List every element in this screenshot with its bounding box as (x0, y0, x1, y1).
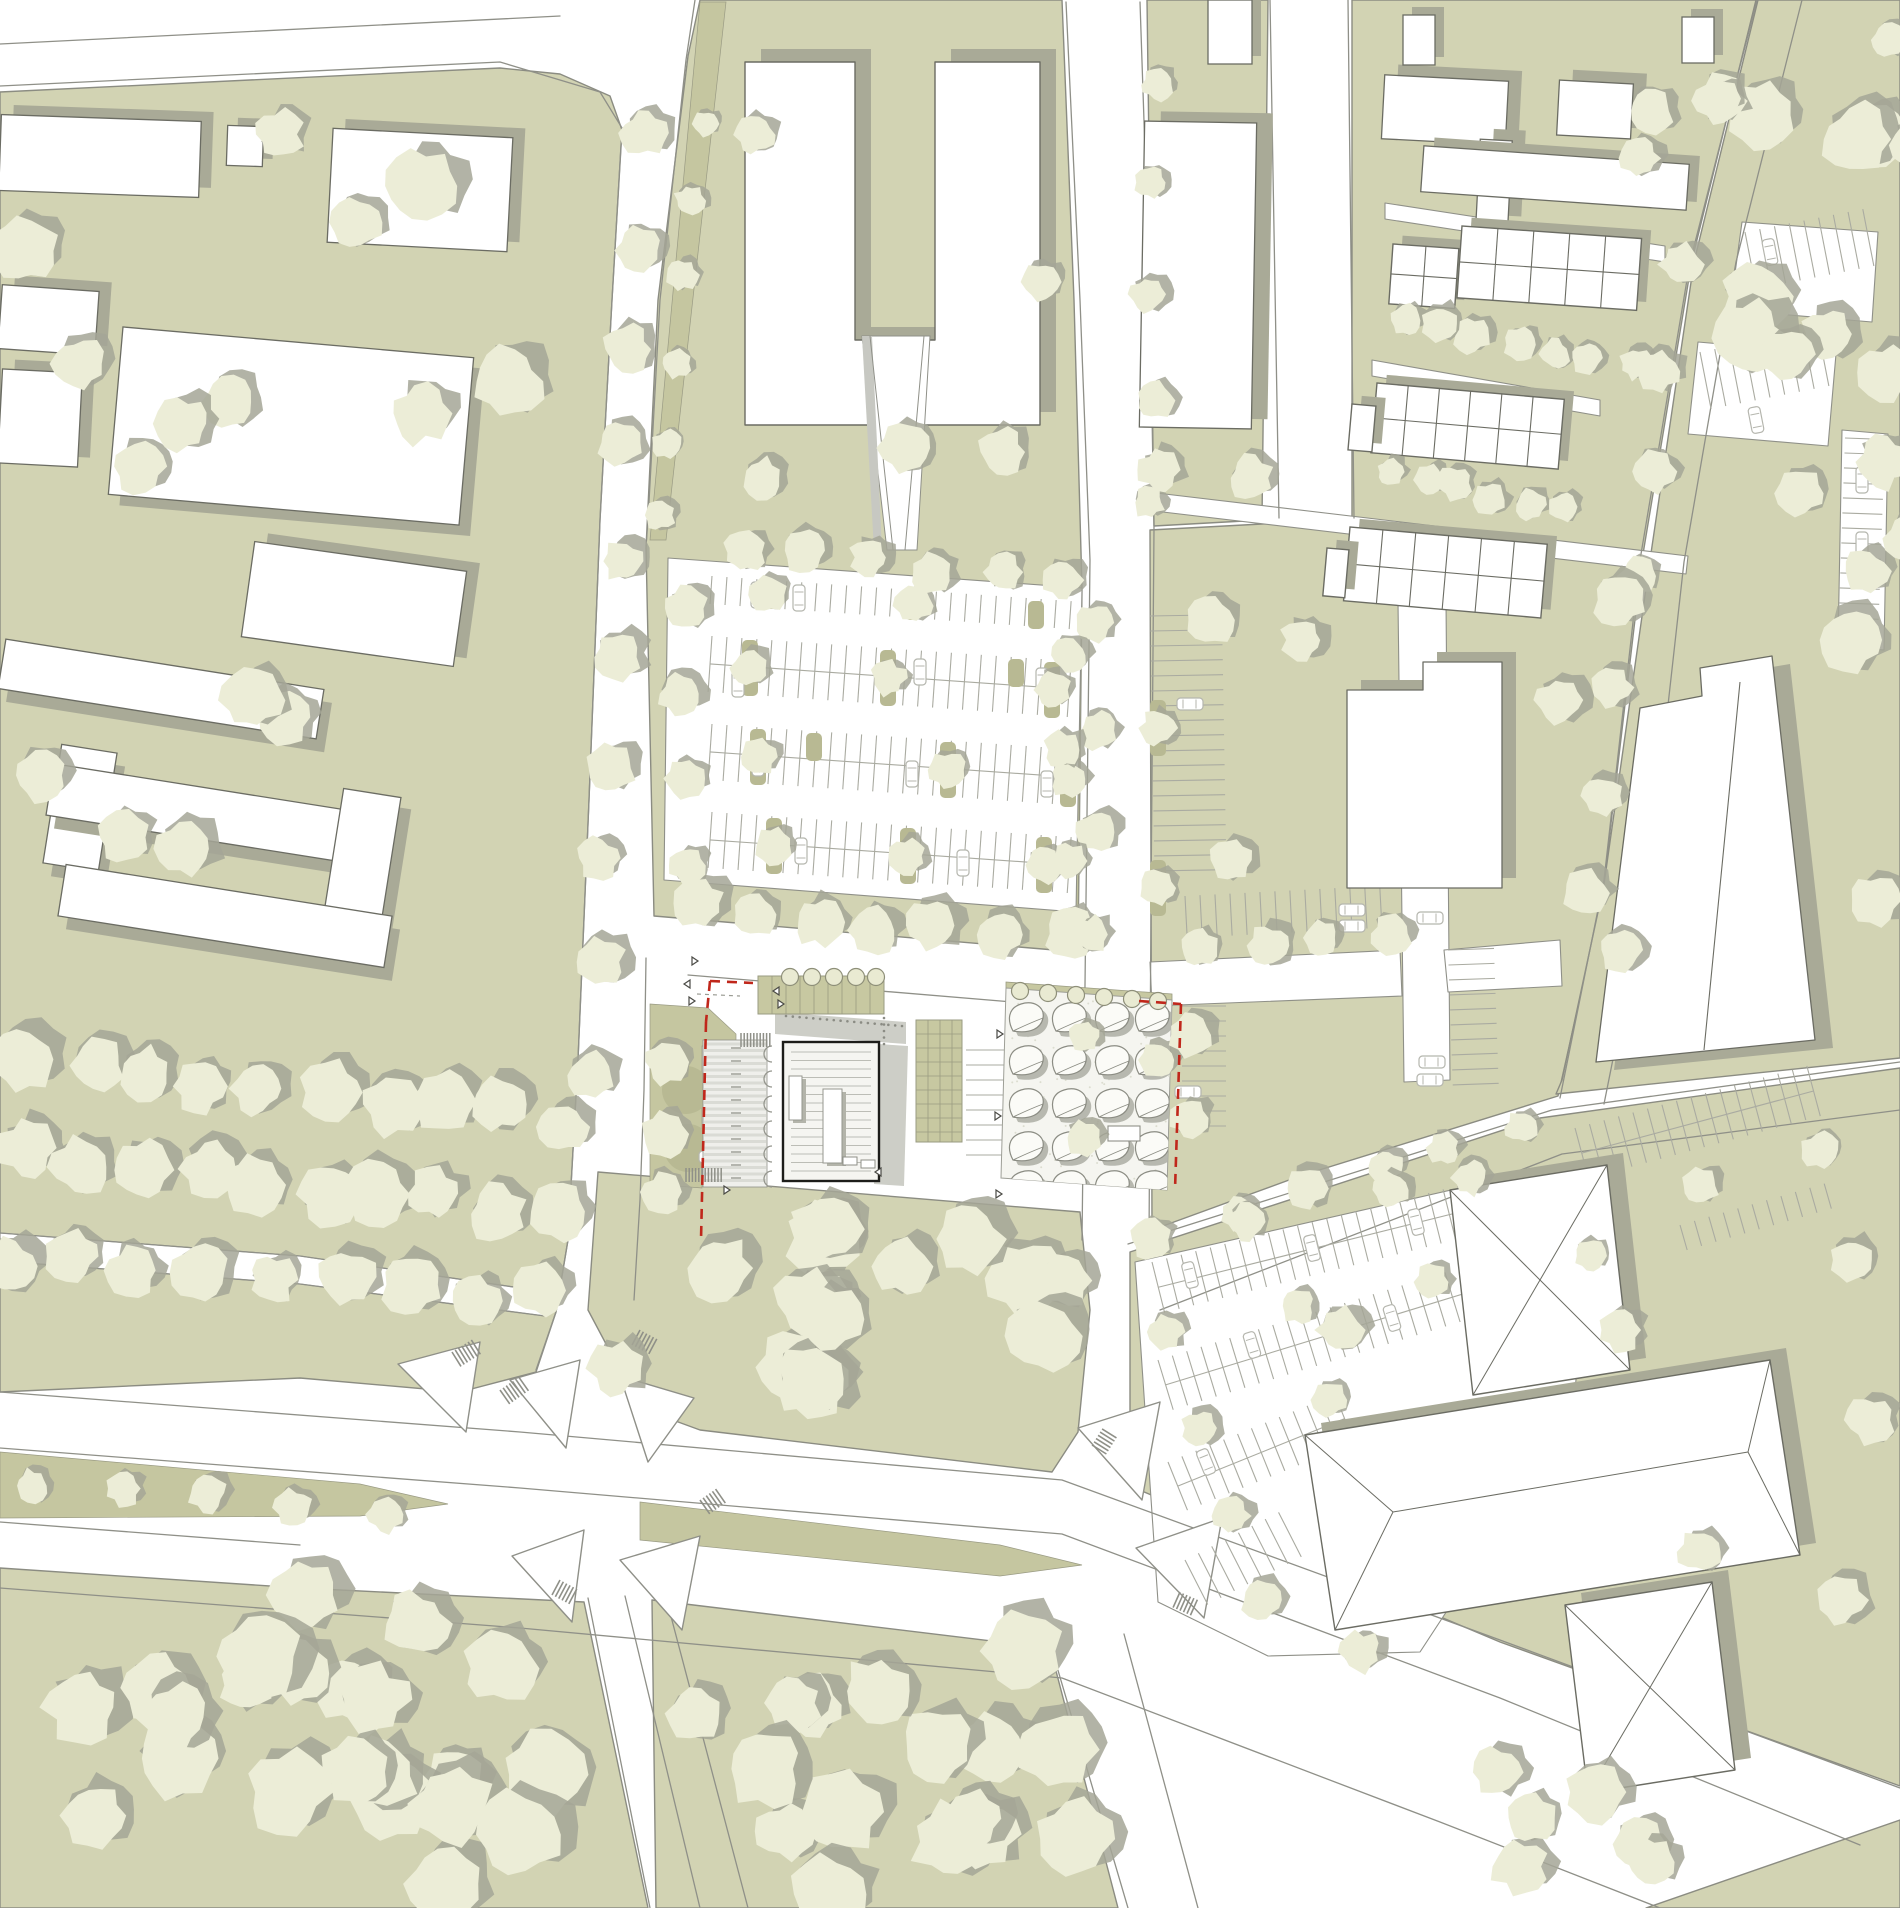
car (795, 838, 807, 864)
car (1417, 912, 1443, 924)
kiosk (1108, 1126, 1140, 1141)
car (1339, 904, 1365, 916)
bench (861, 1160, 875, 1168)
car (914, 659, 926, 685)
pergola-tree (1096, 989, 1113, 1006)
building (1403, 7, 1444, 65)
pergola-tree (782, 969, 799, 986)
bench (843, 1157, 857, 1165)
car (1177, 698, 1203, 710)
pergola-tree (1012, 983, 1029, 1000)
plan-svg (0, 0, 1900, 1908)
car (906, 761, 918, 787)
pergola-tree (826, 969, 843, 986)
pergola-tree (848, 969, 865, 986)
car (1419, 1056, 1445, 1068)
pergola-tree (868, 969, 885, 986)
pergola-tree (1150, 993, 1167, 1010)
pergola-tree (804, 969, 821, 986)
car (1041, 771, 1053, 797)
car (957, 850, 969, 876)
building (1208, 0, 1261, 64)
parking-island (1028, 601, 1044, 629)
pergola-tree (1040, 985, 1057, 1002)
site-plan (0, 0, 1900, 1908)
rowhouse-grid (1457, 217, 1651, 311)
skylight (789, 1076, 802, 1120)
building (0, 105, 214, 198)
parking-island (1008, 659, 1024, 687)
building (1682, 9, 1723, 63)
building (1347, 662, 1502, 888)
tree (1283, 1290, 1313, 1324)
parking-island (806, 733, 822, 761)
pergola-tree (1124, 991, 1141, 1008)
skylight (823, 1089, 842, 1163)
tree (731, 1734, 798, 1809)
car (793, 585, 805, 611)
pergola-tree (1068, 987, 1085, 1004)
pergola-strip (758, 976, 884, 1014)
pergola-strip (916, 1020, 962, 1142)
car (1417, 1074, 1443, 1086)
